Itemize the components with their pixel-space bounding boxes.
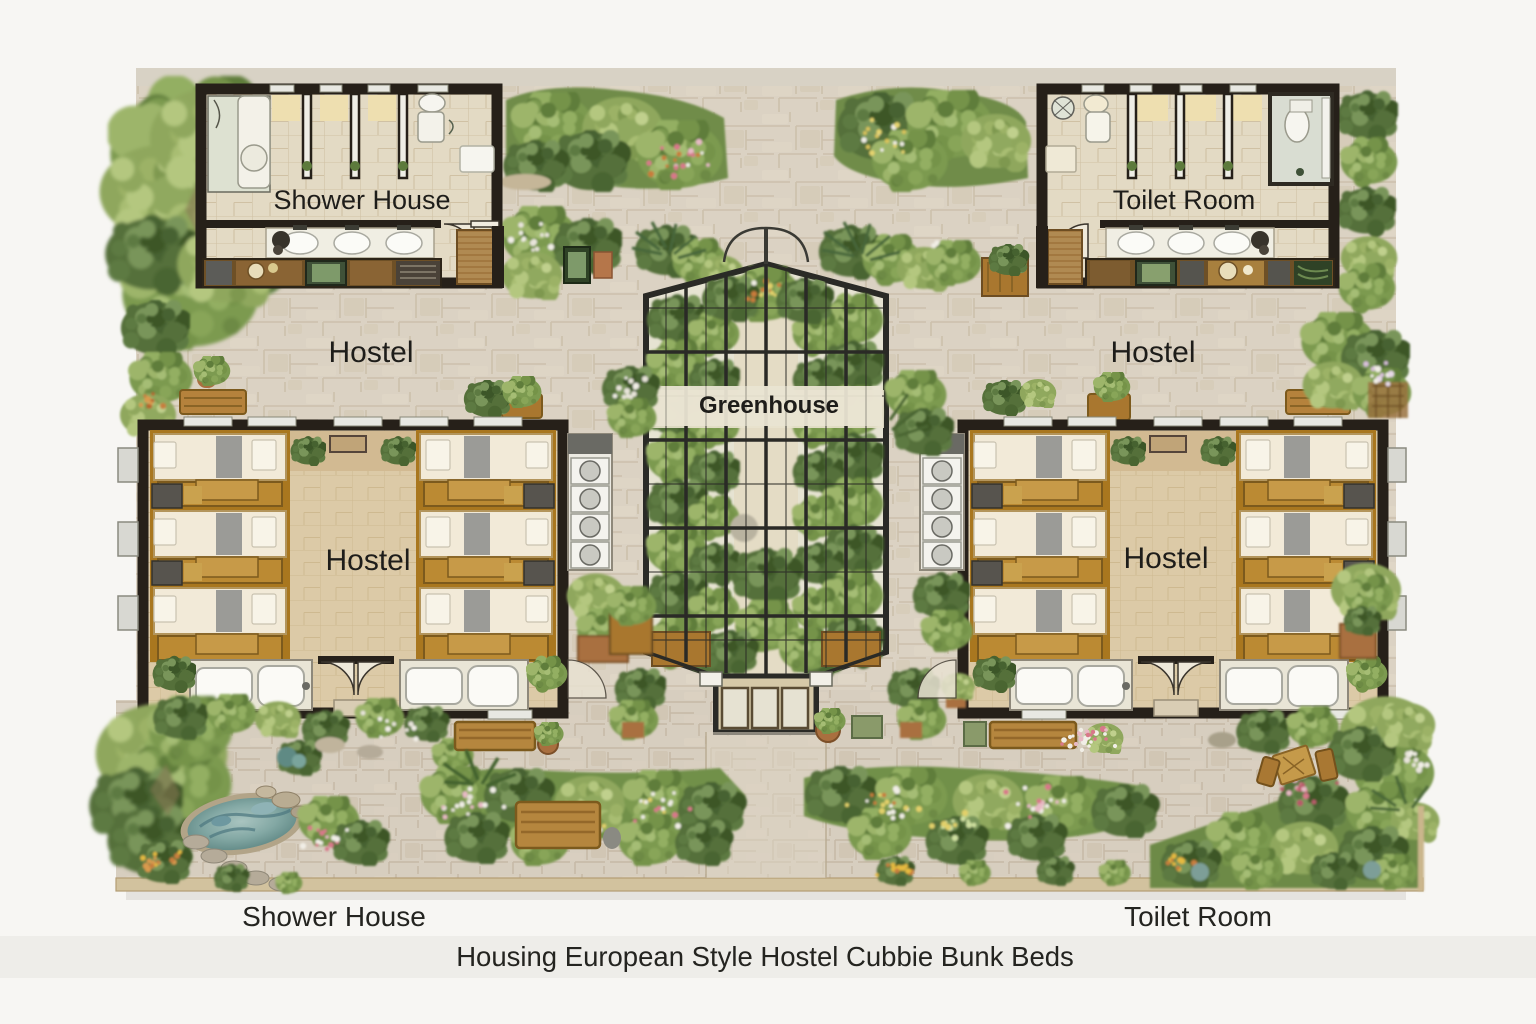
svg-text:Hostel: Hostel [328,336,413,369]
svg-text:Toilet Room: Toilet Room [1124,901,1272,932]
svg-text:Hostel: Hostel [1123,542,1208,575]
svg-text:Toilet Room: Toilet Room [1113,185,1256,215]
svg-text:Shower House: Shower House [273,185,450,215]
svg-text:Greenhouse: Greenhouse [699,392,839,419]
svg-text:Hostel: Hostel [325,544,410,577]
svg-text:Hostel: Hostel [1110,336,1195,369]
svg-text:Housing European Style Hostel: Housing European Style Hostel Cubbie Bun… [456,941,1074,972]
svg-text:Shower House: Shower House [242,901,426,932]
